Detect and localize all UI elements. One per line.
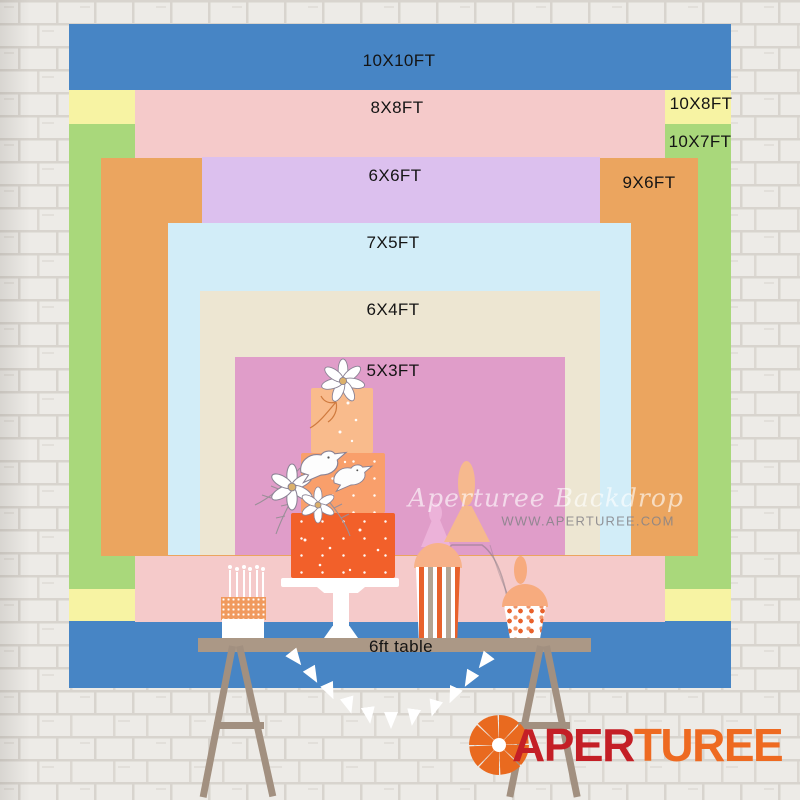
table-size-label: 6ft table [369,637,433,657]
cake-stand-stem [333,592,349,628]
candle [256,570,258,598]
cake-stand-plate [281,578,399,587]
size-label-10x8: 10X8FT [670,94,733,114]
cake-tier-bottom [291,513,395,578]
backdrop-size-chart-image: 10X10FT 8X8FT 10X8FT 10X7FT 6X6FT 9X6FT … [0,0,800,800]
brand-logo: APERTUREE [466,710,800,780]
size-label-6x4: 6X4FT [366,300,419,320]
table-leg-crossbar [214,722,264,729]
size-label-9x6: 9X6FT [622,173,675,193]
candle-tip [228,565,232,569]
candle-tip [255,565,259,569]
cake-tier-top [311,388,373,453]
candle-tip [242,565,246,569]
candy-cup-knob [514,556,527,584]
small-cake-base [222,619,264,638]
candle [249,572,251,600]
size-label-7x5: 7X5FT [366,233,419,253]
candle [262,572,264,600]
watermark-url-text: WWW.APERTUREE.COM [501,514,674,529]
candle [236,572,238,600]
logo-text-orange: TUREE [634,719,782,771]
candy-cup [504,606,546,638]
logo-text-red: APER [512,719,634,771]
logo-wordmark: APERTUREE [512,718,782,772]
candle [243,570,245,598]
cake-tier-middle [301,453,385,513]
candle [229,570,231,598]
size-label-10x10: 10X10FT [363,51,436,71]
candle-tip [248,567,252,571]
size-label-8x8: 8X8FT [370,98,423,118]
size-label-6x6: 6X6FT [368,166,421,186]
watermark-script-text: Aperturee Backdrop [408,484,684,513]
popcorn-box [415,567,461,638]
small-cake-body [221,597,266,620]
candle-tip [261,567,265,571]
size-label-10x7: 10X7FT [669,132,732,152]
candle-tip [235,567,239,571]
size-label-5x3: 5X3FT [366,361,419,381]
